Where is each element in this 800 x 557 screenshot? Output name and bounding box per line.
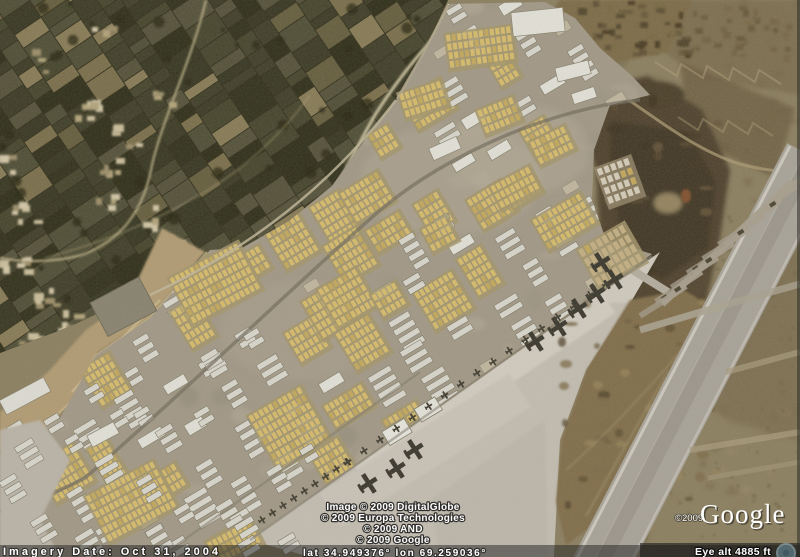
svg-text:© 2009 Europa Technologies: © 2009 Europa Technologies [321, 513, 465, 524]
svg-text:Imagery Date: Oct 31, 2004: Imagery Date: Oct 31, 2004 [3, 546, 221, 557]
svg-text:Eye alt 4885 ft: Eye alt 4885 ft [695, 546, 771, 557]
svg-text:© 2009 Google: © 2009 Google [356, 535, 430, 546]
svg-text:© 2009 AND: © 2009 AND [363, 524, 422, 535]
svg-text:Google: Google [700, 499, 785, 529]
svg-text:©2009: ©2009 [675, 513, 703, 524]
svg-text:lat 34.949376° lon 69.2590: lat 34.949376° lon 69.259036° [303, 548, 487, 557]
svg-text:Image © 2009 DigitalGlobe: Image © 2009 DigitalGlobe [326, 502, 459, 513]
